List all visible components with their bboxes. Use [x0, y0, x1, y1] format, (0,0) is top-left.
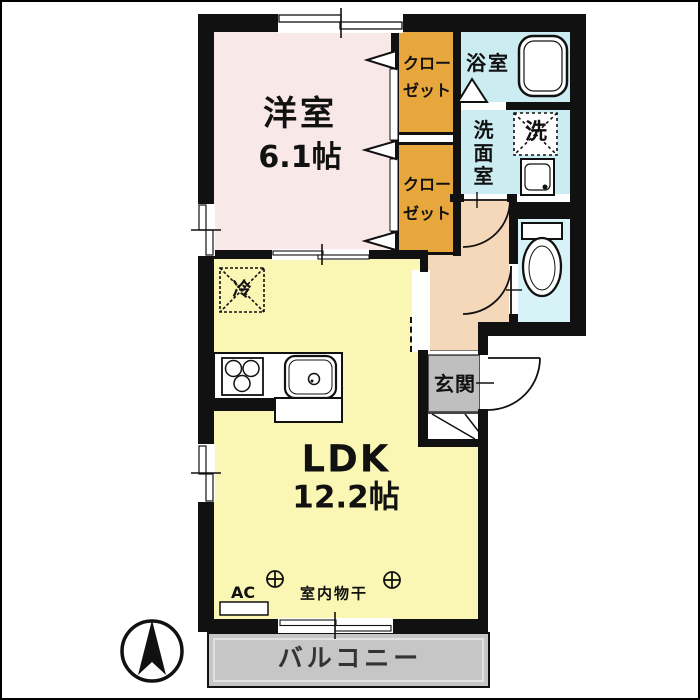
- ac-unit: [220, 602, 268, 615]
- bathtub-icon: [519, 36, 567, 96]
- label-entrance: 玄関: [434, 374, 476, 394]
- label-ldk: LDK: [302, 441, 391, 478]
- label-ldk-size: 12.2帖: [292, 483, 400, 514]
- label-western-room: 洋室: [263, 97, 337, 131]
- label-balcony: バルコニー: [278, 646, 423, 671]
- entrance-door-arc: [476, 358, 540, 410]
- kitchen-counter: [210, 353, 342, 422]
- label-washer: 洗: [525, 122, 547, 144]
- north-arrow-compass: [122, 620, 182, 681]
- label-closet1-line1: クロー: [403, 56, 451, 72]
- stove-icon: [222, 358, 263, 395]
- label-laundry: 室内物干: [300, 587, 368, 602]
- bath-door-triangle-icon: [458, 79, 487, 102]
- label-western-room-size: 6.1帖: [258, 143, 341, 173]
- label-closet1-line2: ゼット: [403, 83, 451, 99]
- window-left-ldk: [191, 444, 221, 502]
- floorplan-canvas: 洋室 6.1帖 クロー ゼット クロー ゼット 浴室 洗面室 洗 玄関 LDK …: [0, 0, 700, 700]
- label-closet2-line1: クロー: [403, 177, 451, 193]
- label-washroom: 洗面室: [472, 120, 492, 189]
- kitchen-counter-return: [275, 398, 342, 422]
- label-closet2-line2: ゼット: [403, 206, 451, 222]
- window-left-western: [191, 204, 221, 256]
- label-refrigerator: 冷: [232, 281, 251, 300]
- kitchen-half-wall: [210, 398, 275, 411]
- porch-step-lines: [432, 414, 479, 439]
- toilet-icon: [522, 223, 562, 296]
- label-bathroom: 浴室: [466, 53, 510, 73]
- toilet-door-arc: [463, 266, 522, 314]
- washbasin-icon: [521, 159, 554, 195]
- sink-icon: [285, 356, 336, 404]
- washroom-door-arc: [463, 192, 510, 247]
- sliding-door-balcony: [278, 612, 393, 639]
- window-top-sliding: [278, 8, 403, 38]
- label-ac: AC: [231, 585, 255, 601]
- sliding-door-western-ldk: [272, 244, 369, 265]
